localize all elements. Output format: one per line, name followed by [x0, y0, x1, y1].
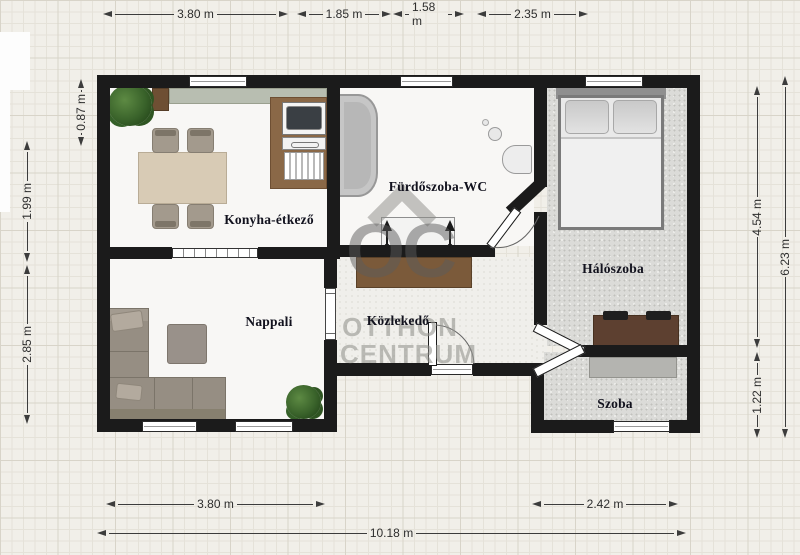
dimension-right-3: 1.22 m	[750, 352, 764, 438]
sink	[482, 119, 489, 126]
monitor-icon	[646, 311, 671, 320]
window	[400, 76, 453, 87]
dimension-left-1: 0.87 m	[74, 79, 88, 138]
dimension-top-1: 3.80 m	[103, 7, 288, 21]
wall	[97, 419, 337, 432]
chair	[187, 128, 214, 153]
sink-drawer	[282, 137, 326, 150]
watermark-logo: OC	[344, 214, 456, 290]
window	[585, 76, 643, 87]
potted-plant	[108, 84, 152, 126]
potted-plant	[286, 385, 321, 419]
dimension-top-2: 1.85 m	[297, 7, 391, 21]
wall	[578, 345, 688, 357]
room-label-hall: Közlekedő	[323, 313, 473, 329]
floor-plan: OC OTTHON CENTRUM Konyha-étkező Fürdőszo…	[0, 0, 800, 555]
pass-through-window	[172, 248, 258, 258]
dining-table	[138, 152, 227, 204]
window	[142, 421, 197, 432]
room-label-kitchen: Konyha-étkező	[194, 212, 344, 228]
room-label-bathroom: Fürdőszoba-WC	[363, 179, 513, 195]
room-label-living: Nappali	[194, 314, 344, 330]
wall	[327, 86, 340, 259]
toilet	[502, 145, 532, 174]
dimension-left-3: 2.85 m	[20, 265, 34, 424]
monitor-icon	[603, 311, 628, 320]
pillow	[613, 100, 657, 134]
dimension-bottom-2: 2.42 m	[532, 497, 678, 511]
dimension-bottom-1: 3.80 m	[106, 497, 325, 511]
dimension-right-1: 4.54 m	[750, 86, 764, 348]
dimension-top-3: 1.58 m	[393, 7, 464, 21]
kitchen-counter-corner	[152, 88, 169, 111]
wall	[687, 75, 700, 433]
pillow	[565, 100, 609, 134]
watermark-text: CENTRUM	[340, 341, 460, 367]
pillow	[115, 383, 143, 402]
wall	[473, 363, 533, 376]
page-margin-strip	[0, 32, 10, 212]
window	[235, 421, 293, 432]
stove-icon	[282, 102, 326, 135]
window	[189, 76, 247, 87]
chair	[152, 128, 179, 153]
wall	[531, 420, 614, 433]
chair	[152, 204, 179, 229]
wall	[534, 75, 547, 187]
sink	[488, 127, 502, 141]
wall	[324, 247, 337, 288]
room-label-room: Szoba	[540, 396, 690, 412]
dimension-top-4: 2.35 m	[477, 7, 588, 21]
dimension-bottom-total: 10.18 m	[97, 526, 686, 540]
wall	[97, 247, 172, 259]
ottoman	[167, 324, 207, 364]
wall	[324, 340, 337, 432]
room-label-bedroom: Hálószoba	[538, 261, 688, 277]
dimension-left-2: 1.99 m	[20, 141, 34, 262]
kitchen-appliance	[270, 97, 327, 189]
window	[613, 421, 670, 432]
duvet	[561, 137, 661, 227]
dish-rack-icon	[284, 152, 324, 180]
dimension-right-2: 6.23 m	[778, 76, 792, 438]
shelf	[589, 357, 677, 378]
